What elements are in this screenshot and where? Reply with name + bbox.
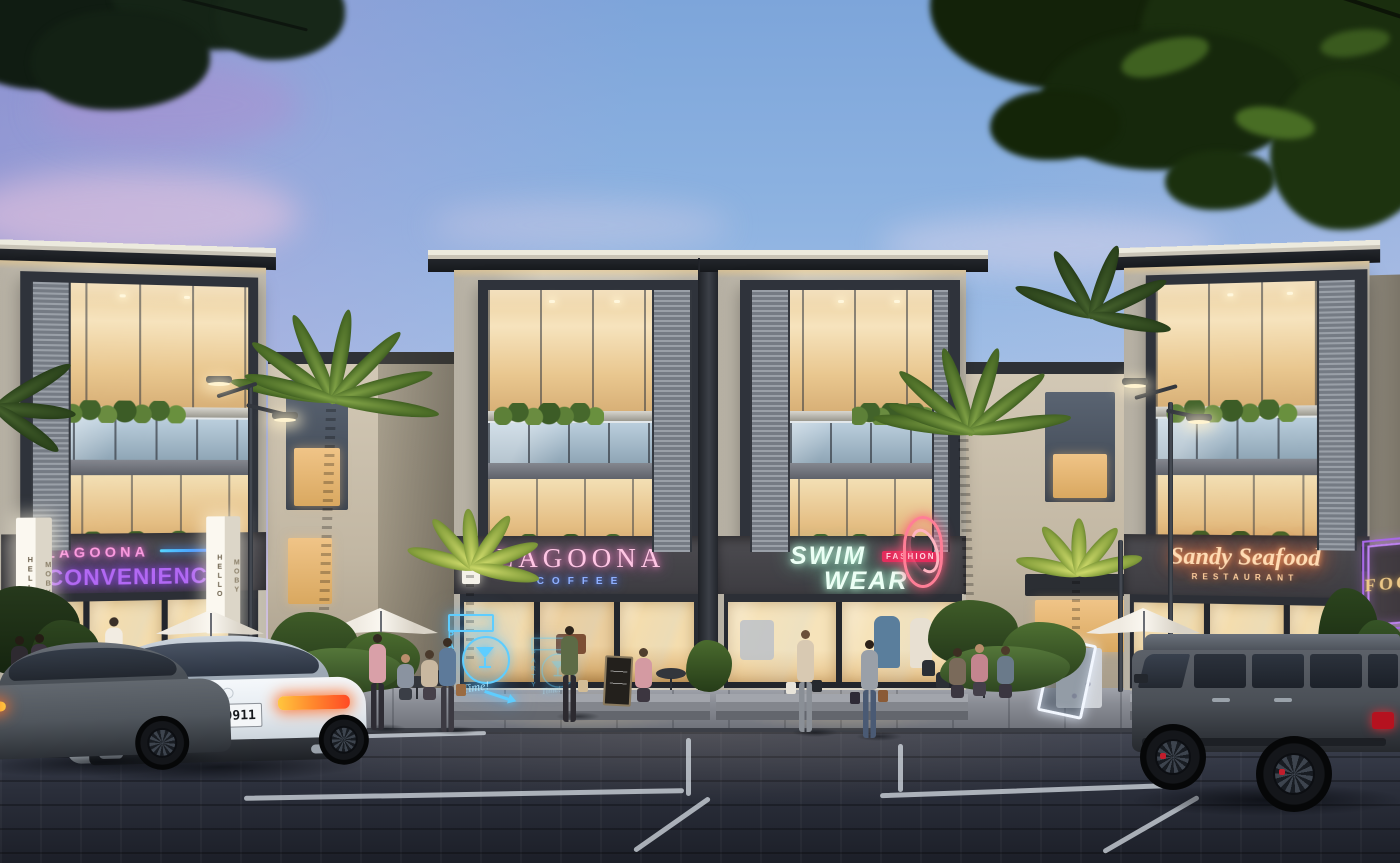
- parking-line: [898, 744, 903, 792]
- seafood-sub-text: RESTAURANT: [1170, 572, 1321, 583]
- suv-window: [1368, 654, 1398, 688]
- door-handle: [1212, 698, 1230, 702]
- tail-light: [1372, 712, 1394, 729]
- steps: [716, 694, 968, 720]
- lamp-head: [1186, 414, 1212, 421]
- tail-light: [278, 695, 350, 711]
- balcony-planter: [62, 400, 186, 423]
- door-handle: [1274, 698, 1292, 702]
- swimwear-neon-sign: SWIM WEAR FASHION: [790, 542, 908, 596]
- seahorse-neon-icon: [903, 516, 943, 588]
- street-scene: LAGOONA CONVENIENCE HELLO MOBY HELLO MOB…: [0, 0, 1400, 863]
- roof: [428, 250, 728, 272]
- grey-sedan-car: [0, 637, 236, 780]
- lamp-head: [1122, 378, 1148, 385]
- suv-window: [1194, 654, 1246, 688]
- shopping-bag: [578, 680, 588, 692]
- chalkboard-menu-sign: [603, 655, 634, 706]
- shopping-bag: [786, 682, 796, 694]
- suv-car: [1128, 608, 1400, 816]
- lamp-head: [272, 412, 298, 419]
- balcony-planter: [494, 403, 604, 425]
- lamp-head: [206, 376, 232, 383]
- convenience-neon-sign: LAGOONA CONVENIENCE: [46, 541, 224, 591]
- seated-customer: [630, 648, 656, 702]
- suv-window: [1252, 654, 1304, 688]
- wear-text: WEAR: [824, 567, 908, 596]
- cloud: [430, 200, 730, 250]
- seafood-neon-sign: Sandy Seafood RESTAURANT: [1170, 544, 1321, 584]
- glass-atrium: [478, 280, 702, 562]
- shopping-bag: [878, 690, 888, 702]
- clothes-rack: [740, 620, 774, 660]
- seated-customer: [392, 654, 418, 700]
- neon-circle: [462, 636, 510, 684]
- seafood-script-text: Sandy Seafood: [1170, 544, 1321, 573]
- pedestrian: [556, 626, 582, 722]
- convenience-word-text: CONVENIENCE: [46, 563, 224, 592]
- suv-window: [1310, 654, 1362, 688]
- cafe-table: [656, 668, 686, 679]
- shopping-bag: [812, 680, 822, 692]
- wheel: [1140, 724, 1206, 790]
- seated-customer: [966, 644, 992, 696]
- wheel: [1256, 736, 1332, 812]
- seated-customer: [992, 646, 1018, 698]
- arrow-icon: [484, 690, 510, 701]
- parking-line: [686, 738, 691, 796]
- shopping-bag: [456, 684, 466, 696]
- cocktail-icon: [476, 647, 494, 658]
- car-body: [0, 677, 232, 760]
- pedestrian-shopper: [856, 640, 882, 738]
- side-mirror: [1134, 674, 1148, 683]
- food-text: FOOD: [1365, 570, 1400, 596]
- shopping-bag: [850, 692, 860, 704]
- roof: [700, 250, 988, 272]
- cafe-chair: [922, 660, 935, 676]
